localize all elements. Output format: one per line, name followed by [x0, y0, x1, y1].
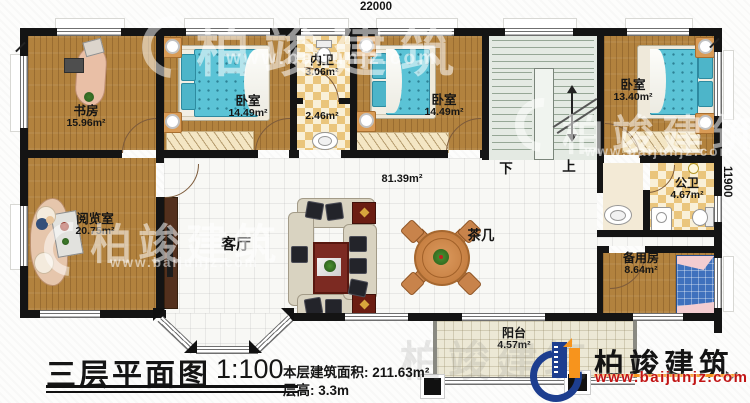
- bed: [676, 255, 715, 315]
- wall: [683, 313, 714, 321]
- window: [20, 56, 28, 128]
- cushion: [348, 278, 369, 297]
- watermark-url: www.baijunjz.com: [110, 255, 259, 270]
- plant: [84, 92, 94, 102]
- wall: [480, 150, 489, 158]
- cushion: [305, 201, 325, 221]
- passage-floor: [597, 237, 714, 246]
- washbasin-inner: [318, 136, 332, 146]
- toilet-bowl: [692, 209, 708, 226]
- wall: [408, 313, 462, 321]
- window: [20, 206, 28, 266]
- window: [345, 313, 408, 321]
- wall: [341, 150, 448, 158]
- stair-down-label: 下: [499, 157, 513, 177]
- wall: [297, 98, 303, 104]
- stair-arrow-up-icon: [567, 85, 577, 93]
- room-label-study: 书房15.96m²: [66, 104, 105, 130]
- wall: [597, 313, 633, 321]
- room-label-bedroom3: 卧室13.40m²: [613, 78, 652, 104]
- pillow: [181, 83, 196, 110]
- window: [505, 28, 573, 36]
- room-label-bedroom2: 卧室14.49m²: [424, 93, 463, 119]
- cushion: [291, 246, 308, 263]
- wall: [597, 163, 603, 193]
- room-label-hall-area: 2.46m²: [305, 110, 338, 122]
- tea-table: [414, 230, 470, 286]
- nightstand: [162, 112, 182, 133]
- window: [40, 310, 100, 318]
- logo-icon: [530, 340, 592, 392]
- window: [714, 258, 722, 308]
- watermark-url: www.baijunjz.com: [585, 144, 734, 159]
- cushion: [325, 202, 344, 221]
- window: [57, 28, 121, 36]
- nightstand: [356, 111, 376, 132]
- wall: [290, 313, 345, 321]
- title-underline: [46, 385, 298, 388]
- wardrobe: [166, 131, 254, 152]
- window-sill: [723, 256, 734, 312]
- room-label-public-bath: 公卫4.67m²: [670, 177, 703, 202]
- wall: [339, 98, 350, 104]
- logo-url: www.baijunjz.com: [595, 369, 748, 386]
- window: [462, 313, 545, 321]
- cushion: [349, 236, 367, 252]
- wall: [597, 253, 603, 321]
- window: [633, 313, 683, 321]
- scale-label: 1:100: [216, 354, 284, 385]
- rug: [313, 242, 349, 294]
- window: [714, 196, 722, 222]
- watermark-url: www.baijunjz.com: [226, 48, 438, 70]
- wall: [643, 190, 650, 231]
- ceiling-lamp-icon: [688, 163, 699, 174]
- wall: [482, 36, 489, 160]
- window: [627, 28, 689, 36]
- floor-area-line: 本层建筑面积: 211.63m²: [283, 361, 429, 381]
- wall: [597, 230, 714, 237]
- wall: [545, 313, 597, 321]
- living-room-area: 81.39m²: [382, 173, 423, 185]
- dimension-right: 11900: [721, 166, 733, 197]
- wall: [156, 158, 164, 163]
- side-table: [352, 202, 376, 224]
- blanket: [677, 256, 714, 270]
- cushion: [349, 258, 367, 274]
- plant: [324, 260, 336, 272]
- wall: [28, 150, 122, 158]
- wall: [289, 150, 299, 158]
- floor-height-line: 层高: 3.3m: [283, 379, 349, 399]
- floor-plan-canvas: 22000 11900: [0, 0, 750, 403]
- monitor: [64, 58, 84, 73]
- room-label-bedroom1: 卧室14.49m²: [228, 94, 267, 120]
- wall: [597, 246, 609, 253]
- washbasin-inner: [610, 210, 626, 221]
- person-head: [46, 216, 54, 224]
- room-label-spare-room: 备用房8.64m²: [623, 252, 659, 277]
- tea-table-label: 茶几: [468, 224, 495, 244]
- nightstand: [695, 37, 715, 58]
- washer-door: [656, 212, 667, 223]
- wall: [156, 150, 258, 158]
- title-underline: [46, 391, 298, 393]
